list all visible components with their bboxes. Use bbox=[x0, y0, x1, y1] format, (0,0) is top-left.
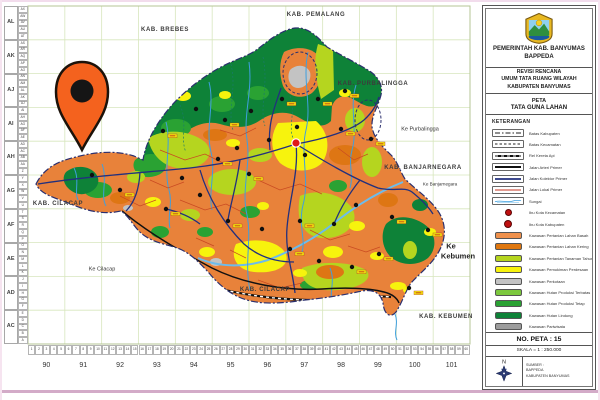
legend-item-label: Kawasan Pertanian Lahan Kering bbox=[529, 244, 589, 249]
legend-item-label: Kawasan Hutan Lindung bbox=[529, 313, 573, 318]
panel-header: PEMERINTAH KAB. BANYUMAS BAPPEDA bbox=[486, 9, 592, 68]
title-line: REVISI RENCANA bbox=[517, 69, 561, 77]
agency-unit: BAPPEDA bbox=[524, 54, 553, 60]
map-label: PETA bbox=[532, 98, 546, 104]
kecamatan-dot bbox=[198, 193, 202, 197]
legend-line-swatch bbox=[492, 152, 524, 160]
legend-item: Kawasan Pertanian Lahan Kering bbox=[486, 241, 592, 252]
legend-item-label: Rel Kereta Api bbox=[529, 153, 555, 158]
kecamatan-dot bbox=[247, 172, 251, 176]
kecamatan-dot bbox=[390, 215, 394, 219]
kecamatan-dot bbox=[350, 265, 354, 269]
legend-item: Kawasan Pertanian Tanaman Tahunan bbox=[486, 253, 592, 264]
kecamatan-dot bbox=[260, 227, 264, 231]
location-pin-icon[interactable] bbox=[56, 62, 108, 150]
legend-item-label: Jalan Lokal Primer bbox=[529, 187, 562, 192]
legend-item: Jalan Kolektor Primer bbox=[486, 173, 592, 184]
legend-item: Kawasan Hutan Produksi Terbatas bbox=[486, 287, 592, 298]
map-canvas[interactable] bbox=[0, 0, 480, 400]
kecamatan-dot bbox=[194, 107, 198, 111]
panel-footer: N SUMBER :BAPPEDAKABUPATEN BANYUMAS bbox=[486, 357, 592, 386]
kecamatan-dot bbox=[90, 173, 94, 177]
legend-item-label: Jalan Kolektor Primer bbox=[529, 176, 567, 181]
kecamatan-dot bbox=[235, 146, 239, 150]
legend-title: KETERANGAN bbox=[492, 119, 592, 125]
legend-item-label: Kawasan Pemukiman Perdesaan bbox=[529, 267, 588, 272]
kecamatan-dot bbox=[407, 286, 411, 290]
legend-item-label: Kawasan Pertanian Tanaman Tahunan bbox=[529, 256, 593, 261]
legend-area-swatch bbox=[492, 300, 524, 308]
legend-item-label: Kawasan Pariwisata bbox=[529, 324, 565, 329]
map-title-block: PETA TATA GUNA LAHAN bbox=[486, 94, 592, 115]
kecamatan-dot bbox=[426, 228, 430, 232]
source-line: KABUPATEN BANYUMAS bbox=[526, 374, 589, 380]
kecamatan-dot bbox=[298, 219, 302, 223]
legend-item: Ibu Kota Kabupaten bbox=[486, 218, 592, 229]
kecamatan-dot bbox=[226, 219, 230, 223]
kabupaten-capital-dot bbox=[292, 139, 300, 147]
compass-icon: N bbox=[492, 358, 516, 385]
legend-item-label: Batas Kabupaten bbox=[529, 131, 560, 136]
legend: KETERANGAN Batas KabupatenBatas Kecamata… bbox=[486, 115, 592, 333]
kecamatan-dot bbox=[216, 157, 220, 161]
north-arrow: N bbox=[486, 357, 523, 386]
legend-item: Kawasan Pariwisata bbox=[486, 321, 592, 332]
map-document: ALAKAJAIAHAGAFAEADACAXAWAVAUATASARAQAPAO… bbox=[0, 0, 600, 400]
legend-area-swatch bbox=[492, 288, 524, 296]
legend-area-swatch bbox=[492, 277, 524, 285]
legend-line-swatch bbox=[492, 140, 524, 148]
legend-item: Jalan Lokal Primer bbox=[486, 184, 592, 195]
kecamatan-dot bbox=[223, 118, 227, 122]
legend-area-swatch bbox=[492, 311, 524, 319]
legend-item: Ibu Kota Kecamatan bbox=[486, 207, 592, 218]
map-panel: ALAKAJAIAHAGAFAEADACAXAWAVAUATASARAQAPAO… bbox=[0, 0, 480, 400]
legend-item: Rel Kereta Api bbox=[486, 150, 592, 161]
agency-name: PEMERINTAH KAB. BANYUMAS bbox=[493, 46, 585, 52]
info-panel: PEMERINTAH KAB. BANYUMAS BAPPEDA REVISI … bbox=[482, 5, 596, 390]
legend-point-swatch bbox=[492, 220, 524, 228]
kecamatan-dot bbox=[164, 207, 168, 211]
kecamatan-dot bbox=[369, 137, 373, 141]
map-number: NO. PETA : 15 bbox=[486, 333, 592, 346]
map-scale: SKALA = 1 : 250.000 bbox=[486, 346, 592, 357]
legend-line-swatch bbox=[492, 175, 524, 183]
kecamatan-dot bbox=[332, 222, 336, 226]
legend-item-label: Batas Kecamatan bbox=[529, 142, 561, 147]
kecamatan-dot bbox=[180, 176, 184, 180]
legend-area-swatch bbox=[492, 266, 524, 274]
document-title: REVISI RENCANA UMUM TATA RUANG WILAYAH K… bbox=[486, 68, 592, 94]
title-line: KABUPATEN BANYUMAS bbox=[507, 84, 570, 92]
legend-line-swatch bbox=[492, 197, 524, 205]
legend-item-label: Ibu Kota Kabupaten bbox=[529, 222, 564, 227]
kecamatan-dot bbox=[316, 97, 320, 101]
legend-line-swatch bbox=[492, 129, 524, 137]
legend-line-swatch bbox=[492, 186, 524, 194]
legend-area-swatch bbox=[492, 254, 524, 262]
kecamatan-dot bbox=[339, 127, 343, 131]
legend-area-swatch bbox=[492, 323, 524, 331]
legend-item-label: Ibu Kota Kecamatan bbox=[529, 210, 565, 215]
legend-area-swatch bbox=[492, 232, 524, 240]
legend-item: Batas Kabupaten bbox=[486, 127, 592, 138]
kecamatan-dot bbox=[288, 247, 292, 251]
legend-item-label: Kawasan Hutan Produksi Terbatas bbox=[529, 290, 590, 295]
legend-item-label: Jalan Arteri Primer bbox=[529, 165, 562, 170]
kecamatan-dot bbox=[317, 259, 321, 263]
legend-line-swatch bbox=[492, 163, 524, 171]
kecamatan-dot bbox=[249, 109, 253, 113]
kecamatan-dot bbox=[280, 97, 284, 101]
kecamatan-dot bbox=[377, 252, 381, 256]
source-box: SUMBER :BAPPEDAKABUPATEN BANYUMAS bbox=[523, 357, 592, 386]
legend-item-label: Sungai bbox=[529, 199, 541, 204]
legend-item: Kawasan Pertanian Lahan Basah bbox=[486, 230, 592, 241]
map-name: TATA GUNA LAHAN bbox=[511, 105, 567, 111]
legend-area-swatch bbox=[492, 243, 524, 251]
kecamatan-dot bbox=[354, 203, 358, 207]
kecamatan-dot bbox=[303, 153, 307, 157]
coat-of-arms-logo bbox=[524, 12, 554, 44]
legend-item: Kawasan Pemukiman Perdesaan bbox=[486, 264, 592, 275]
legend-item: Jalan Arteri Primer bbox=[486, 162, 592, 173]
legend-item-label: Kawasan Perkotaan bbox=[529, 279, 565, 284]
kecamatan-dot bbox=[161, 129, 165, 133]
legend-item: Kawasan Hutan Lindung bbox=[486, 310, 592, 321]
legend-point-swatch bbox=[492, 209, 524, 217]
legend-item: Sungai bbox=[486, 196, 592, 207]
north-label: N bbox=[502, 359, 506, 365]
kecamatan-dot bbox=[295, 125, 299, 129]
title-line: UMUM TATA RUANG WILAYAH bbox=[501, 76, 576, 84]
legend-item: Kawasan Perkotaan bbox=[486, 275, 592, 286]
legend-item-label: Kawasan Hutan Produksi Tetap bbox=[529, 301, 585, 306]
legend-item: Kawasan Hutan Produksi Tetap bbox=[486, 298, 592, 309]
legend-item: Batas Kecamatan bbox=[486, 139, 592, 150]
kecamatan-dot bbox=[118, 188, 122, 192]
kecamatan-dot bbox=[267, 138, 271, 142]
legend-item-label: Kawasan Pertanian Lahan Basah bbox=[529, 233, 588, 238]
kecamatan-dot bbox=[343, 89, 347, 93]
